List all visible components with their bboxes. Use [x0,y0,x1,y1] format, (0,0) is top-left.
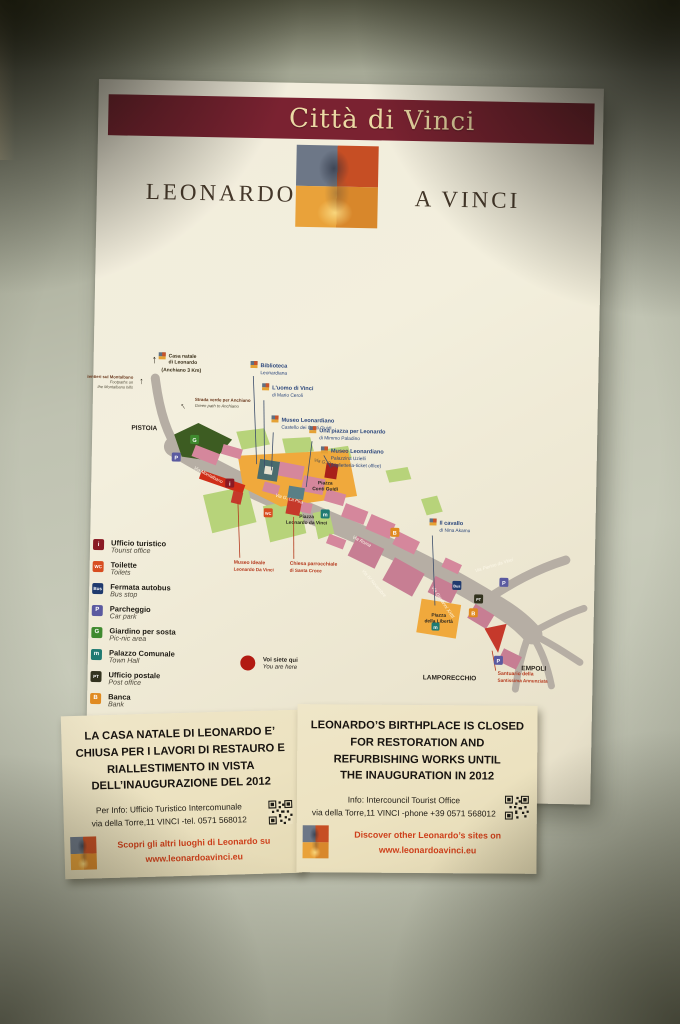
map-roads [149,378,588,690]
brand-a-vinci: A VINCI [415,186,521,214]
closure-notice-english: LEONARDO’S BIRTHPLACE IS CLOSED FOR REST… [296,704,537,874]
you-are-here-marker: Voi siete qui You are here [240,655,298,671]
svg-text:di Mimmo Paladino: di Mimmo Paladino [319,435,360,442]
svg-text:Chiesa parrocchiale: Chiesa parrocchiale [290,561,338,568]
svg-text:Palazzina Uzielli: Palazzina Uzielli [331,456,366,463]
svg-text:PT: PT [476,598,482,602]
legend-item-toilets: WC ToiletteToilets [92,561,177,579]
notice-footer-it: Scopri gli altri luoghi di Leonardo su w… [96,833,296,868]
svg-text:Museo Ideale: Museo Ideale [234,560,266,567]
title-banner: Città di Vinci [108,94,595,144]
svg-text:Piazza: Piazza [299,514,314,520]
svg-text:B: B [393,531,397,537]
qr-code-icon [505,795,529,819]
svg-text:Il cavallo: Il cavallo [439,521,463,527]
leonardo-logo-icon [303,826,329,859]
svg-text:G: G [192,438,196,444]
you-are-here-dot [240,655,255,670]
banner-title: Città di Vinci [227,102,476,137]
notice-title-it: LA CASA NATALE DI LEONARDO E’ CHIUSA PER… [69,723,292,796]
vinci-map-board: Città di Vinci LEONARDO A VINCI [85,79,604,805]
svg-text:Via Pierino da Vinci: Via Pierino da Vinci [474,557,514,574]
map-legend: i Ufficio turisticoTourist office WC Toi… [90,539,178,716]
svg-text:Bus: Bus [453,584,460,588]
leonardo-portrait-icon [295,145,379,229]
post-office-icon: PT [90,671,101,682]
legend-item-post-office: PT Ufficio postalePost office [90,671,175,689]
brand-leonardo: LEONARDO [146,179,297,208]
svg-text:Leonardo da Vinci: Leonardo da Vinci [286,520,328,527]
notice-title-en: LEONARDO’S BIRTHPLACE IS CLOSED FOR REST… [305,717,529,786]
svg-text:Leonardo Da Vinci: Leonardo Da Vinci [234,567,274,573]
svg-text:L'uomo di Vinci: L'uomo di Vinci [272,385,314,392]
svg-text:P: P [502,581,506,587]
map-directions: ↑ Casa natale di Leonardo (Anchiano 3 Km… [85,351,251,413]
north-arrow-icon: ↑ [151,354,157,366]
legend-item-bus-stop: Bus Fermata autobusBus stop [92,583,177,601]
legend-item-car-park: P ParcheggioCar park [92,605,177,623]
legend-item-picnic: G Giardino per sostaPic-nic area [91,627,176,645]
svg-text:LAMPORECCHIO: LAMPORECCHIO [423,674,477,682]
svg-text:Piazza: Piazza [318,480,333,486]
svg-text:(Anchiano 3 Km): (Anchiano 3 Km) [161,367,201,374]
svg-text:Museo Leonardiano: Museo Leonardiano [281,418,335,425]
tourist-office-icon: i [93,539,104,550]
svg-text:di Leonardo: di Leonardo [169,359,198,366]
town-hall-icon: m [91,649,102,660]
svg-text:EMPOLI: EMPOLI [521,665,546,672]
wall-photo: { "header": { "banner_title": "Città di … [0,0,680,1024]
svg-text:B: B [471,611,475,617]
notice-info-en: Info: Intercouncil Tourist Office via de… [305,793,503,820]
svg-text:m: m [323,512,328,518]
svg-text:WC: WC [265,512,272,516]
svg-text:P: P [174,456,178,462]
svg-text:PISTOIA: PISTOIA [131,425,157,433]
notice-info-it: Per Info: Ufficio Turistico Intercomunal… [71,800,267,831]
svg-text:di Santa Croce: di Santa Croce [290,568,323,574]
car-park-icon: P [92,605,103,616]
santuario-building [484,624,507,653]
bus-stop-icon: Bus [92,583,103,594]
svg-text:Museo Leonardiano: Museo Leonardiano [331,449,385,456]
notice-footer-en: Discover other Leonardo’s sites on www.l… [329,828,531,858]
leonardo-logo-icon [70,837,97,871]
picnic-icon: G [91,627,102,638]
svg-text:di Mario Ceroli: di Mario Ceroli [272,392,303,399]
svg-text:Voi siete qui: Voi siete qui [263,657,298,664]
svg-text:the Montalbano hills: the Montalbano hills [97,384,133,390]
montalbano-arrow-icon: ↑ [139,376,144,386]
qr-code-icon [268,800,293,825]
leonardo-logo-icon [295,145,379,229]
svg-text:Leonardiana: Leonardiana [260,370,287,377]
svg-text:di Nina Akamu: di Nina Akamu [439,528,470,535]
legend-item-town-hall: m Palazzo ComunaleTown Hall [91,649,176,667]
closure-notice-italian: LA CASA NATALE DI LEONARDO E’ CHIUSA PER… [61,710,302,880]
svg-text:P: P [496,659,500,665]
legend-item-bank: B BancaBank [90,693,175,711]
svg-text:Green path to Anchiano: Green path to Anchiano [195,403,240,409]
toilets-icon: WC [93,561,104,572]
bank-icon: B [90,693,101,704]
svg-text:(biglietteria-ticket office): (biglietteria-ticket office) [331,463,382,470]
svg-text:Conti Guidi: Conti Guidi [312,486,338,492]
legend-item-tourist-office: i Ufficio turisticoTourist office [93,539,178,557]
svg-text:Via IV Novembre: Via IV Novembre [361,569,388,599]
wall-edge-highlight [0,0,15,160]
svg-text:m: m [433,625,438,631]
svg-text:Santissima Annunziata: Santissima Annunziata [497,678,548,684]
svg-text:Biblioteca: Biblioteca [260,363,288,370]
anchiano-arrow-icon: ↑ [178,401,187,412]
svg-text:Una piazza per Leonardo: Una piazza per Leonardo [319,428,386,435]
svg-text:You are here: You are here [263,664,298,671]
svg-text:Piazza: Piazza [431,612,446,618]
